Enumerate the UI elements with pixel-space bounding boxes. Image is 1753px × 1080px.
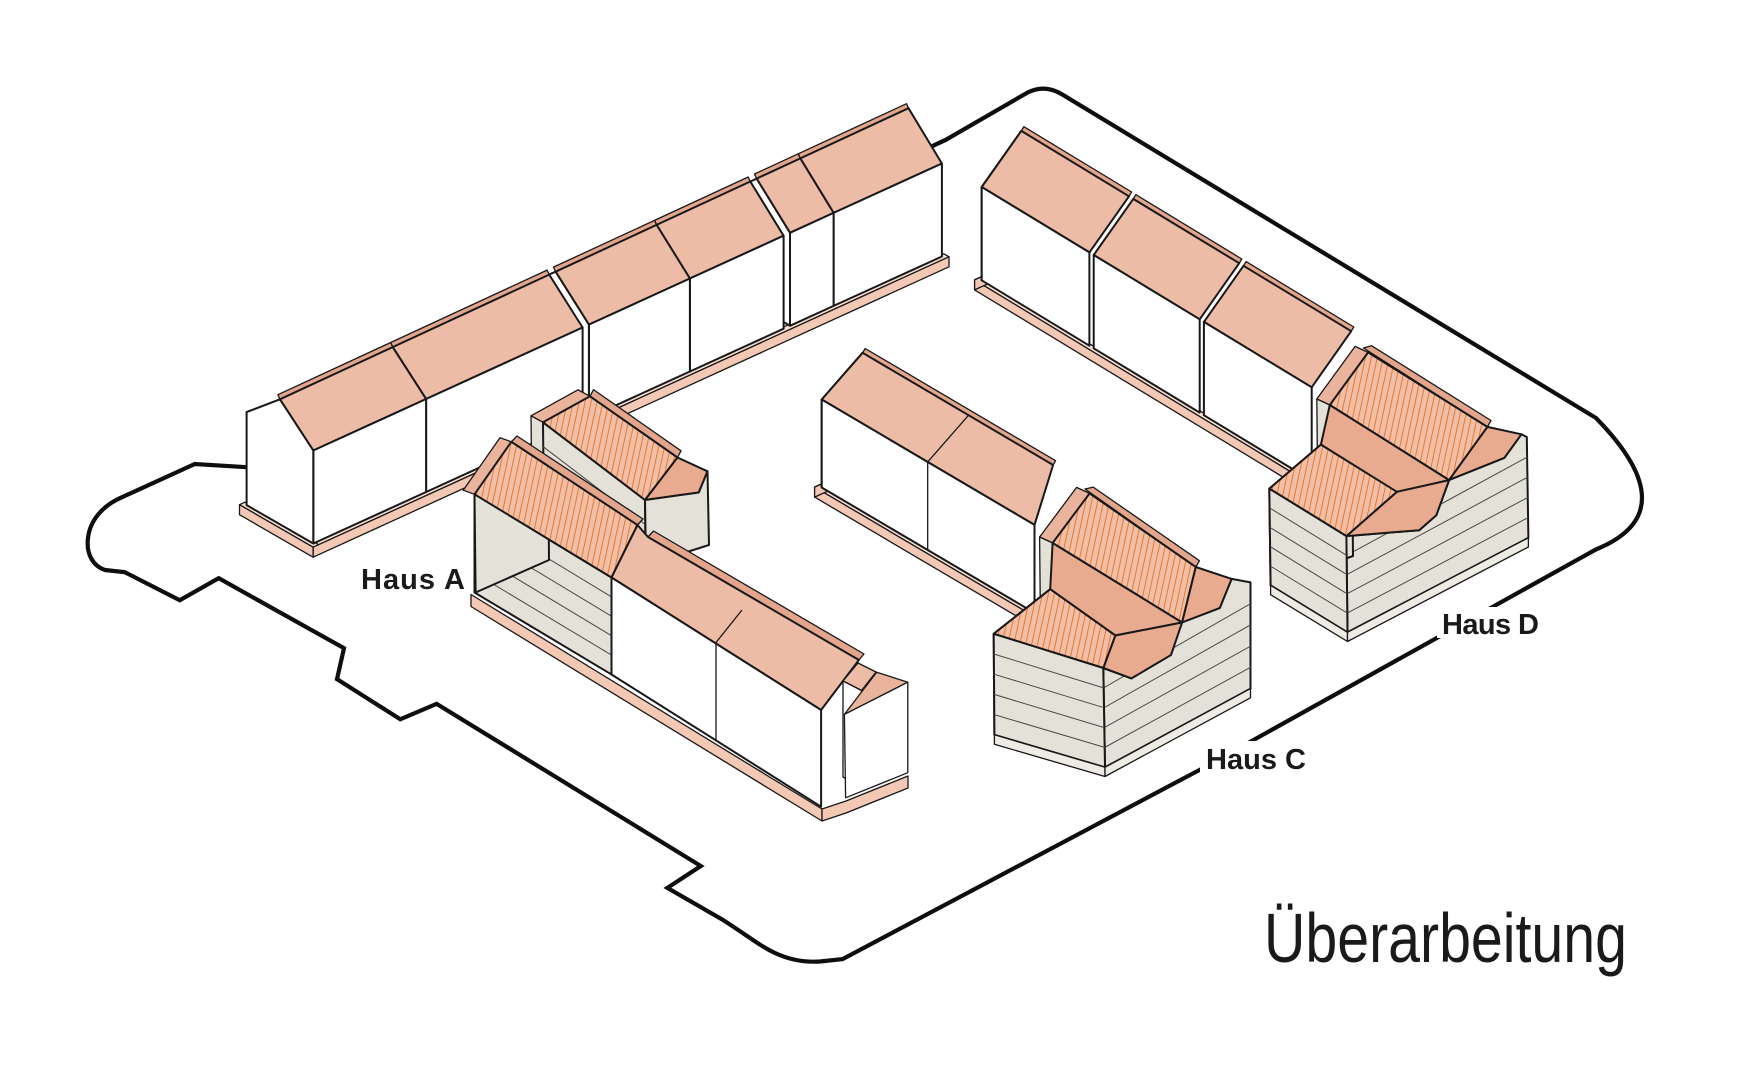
svg-text:Haus C: Haus C xyxy=(1206,744,1306,776)
svg-text:Haus A: Haus A xyxy=(361,564,465,596)
svg-text:Haus D: Haus D xyxy=(1442,609,1539,641)
svg-text:Überarbeitung: Überarbeitung xyxy=(1264,899,1627,977)
